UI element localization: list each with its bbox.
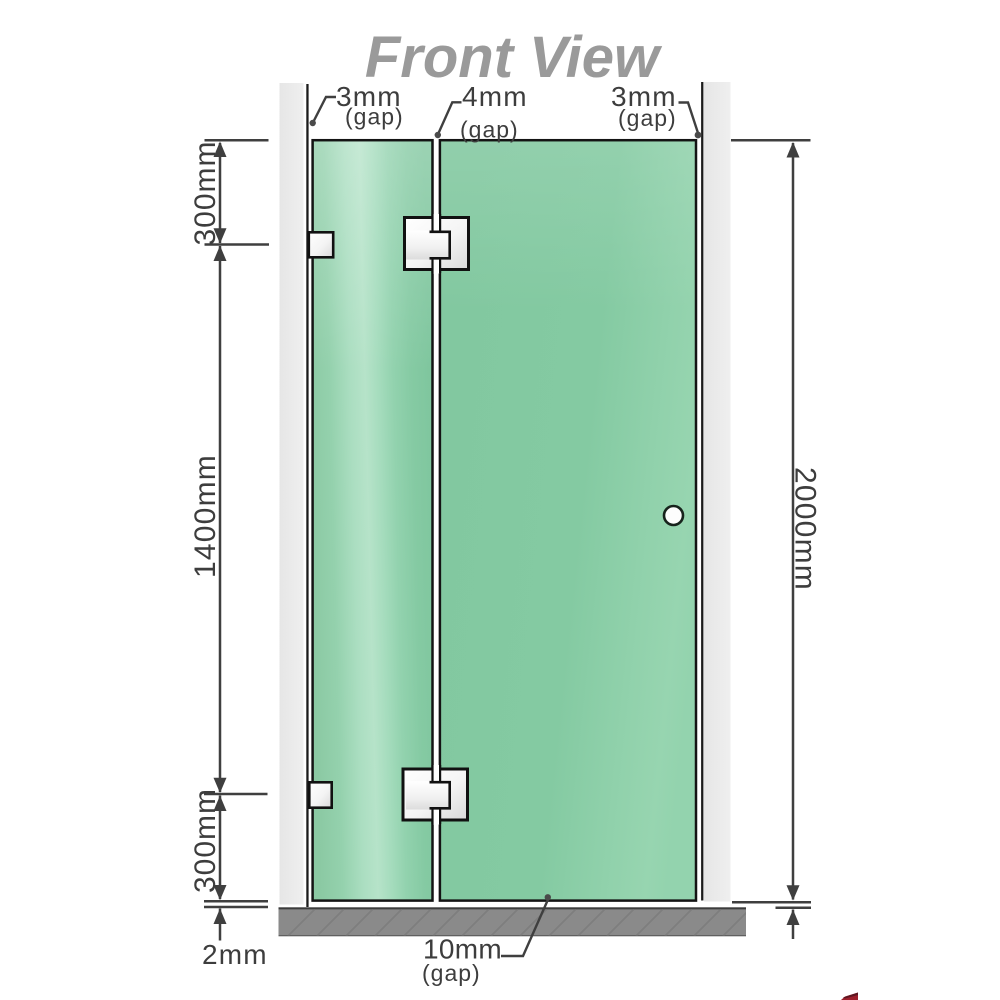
svg-text:300mm: 300mm — [189, 788, 222, 893]
svg-text:(gap): (gap) — [345, 104, 404, 130]
svg-text:4mm: 4mm — [462, 81, 528, 112]
svg-text:1400mm: 1400mm — [189, 454, 222, 578]
svg-text:(gap): (gap) — [618, 105, 677, 131]
svg-text:300mm: 300mm — [189, 140, 222, 245]
svg-text:2000mm: 2000mm — [789, 467, 822, 591]
svg-text:2mm: 2mm — [202, 939, 268, 970]
svg-text:(gap): (gap) — [460, 117, 519, 143]
svg-text:(gap): (gap) — [422, 960, 481, 986]
